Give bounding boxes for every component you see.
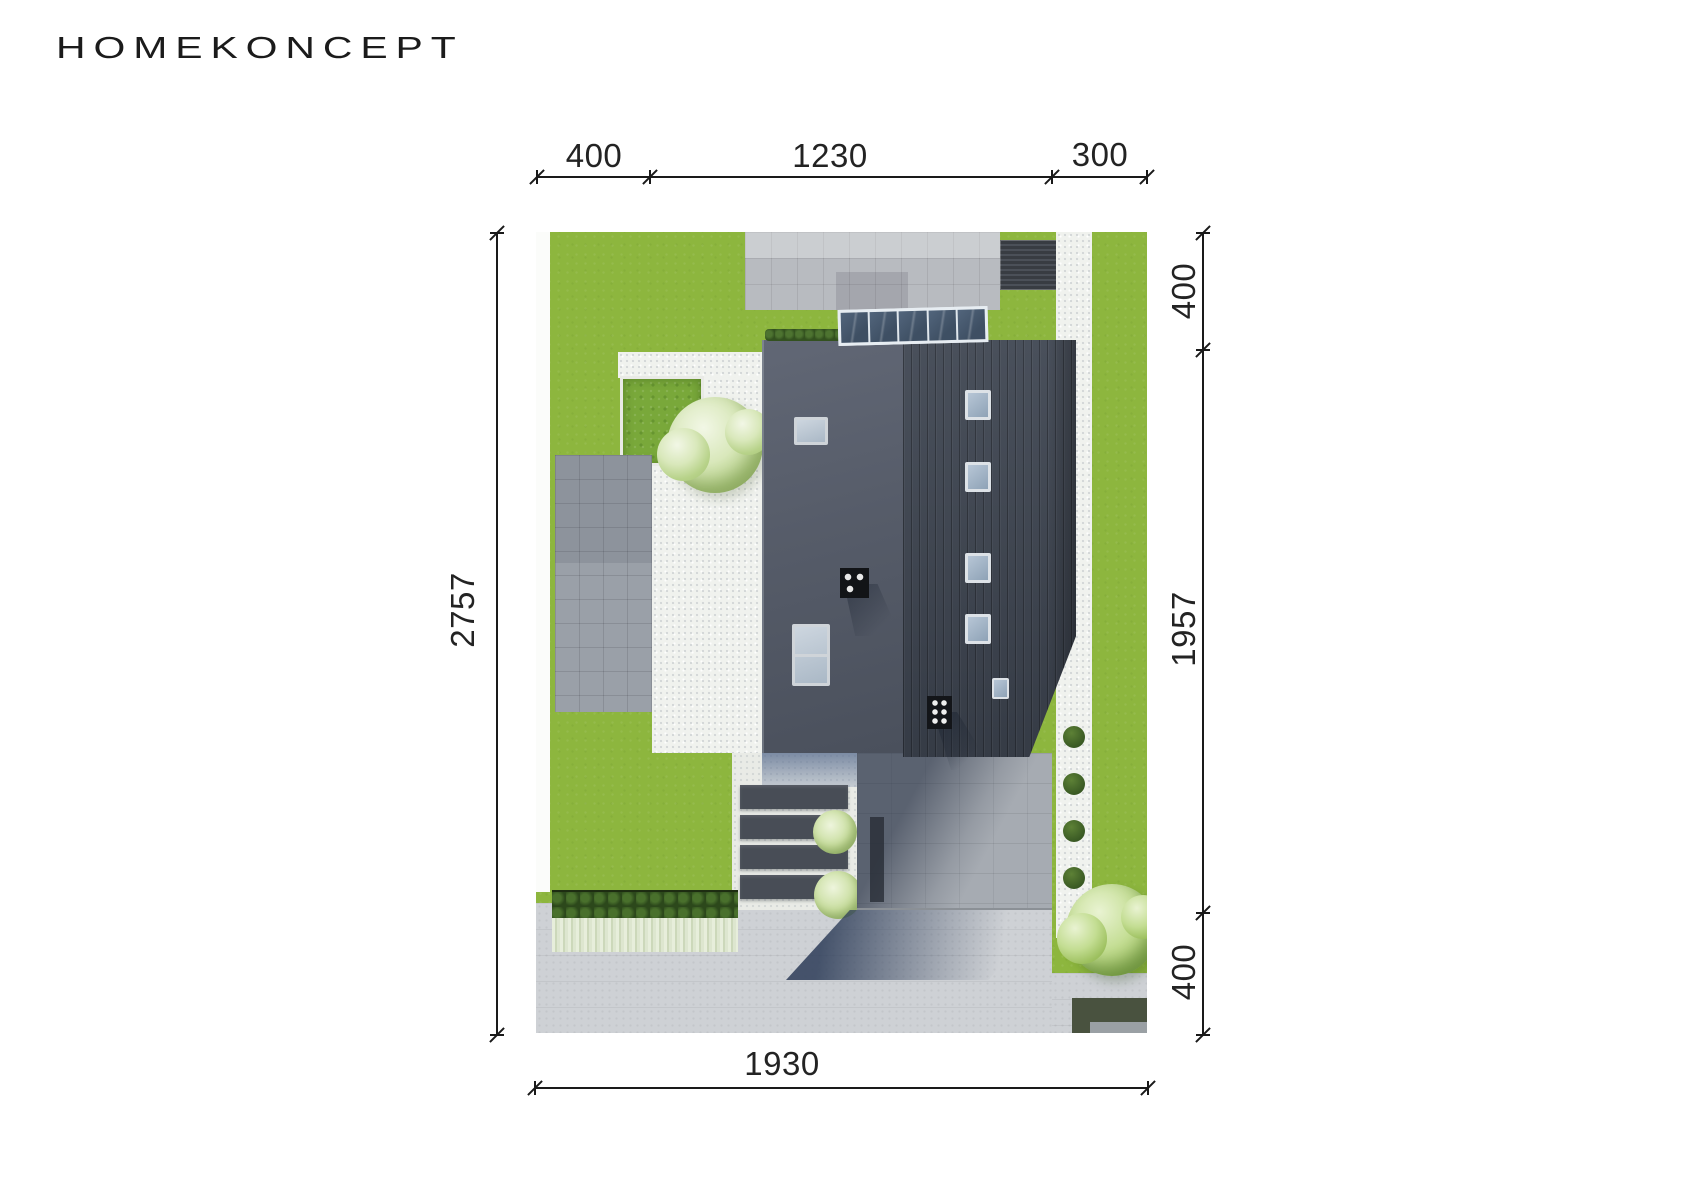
canopy-panel <box>870 311 898 342</box>
gravel-path <box>618 352 762 378</box>
bush <box>1063 820 1085 842</box>
skylight-east-small <box>992 678 1009 699</box>
dim-stub <box>536 170 538 184</box>
patio-tiles <box>555 455 652 712</box>
dim-stub <box>1196 349 1210 351</box>
brand-logo: HOMEKONCEPT <box>56 30 464 66</box>
skylight-east <box>965 553 991 583</box>
dim-label-bottom: 1930 <box>744 1045 819 1083</box>
site-plan-page: HOMEKONCEPT <box>0 0 1699 1200</box>
ornamental-grasses <box>552 918 738 952</box>
plot-render <box>536 232 1147 1033</box>
corner-gray-paving <box>1090 1022 1147 1033</box>
house-shadow-entry <box>762 753 857 787</box>
dim-stub <box>649 170 651 184</box>
entry-shrub <box>813 810 857 854</box>
north-paving <box>745 232 1000 310</box>
dimension-line <box>537 176 1148 178</box>
dim-stub <box>1196 1034 1210 1036</box>
dim-stub <box>1196 912 1210 914</box>
dimension-line <box>496 233 498 1035</box>
dim-stub <box>1146 170 1148 184</box>
dim-label-top-middle: 1230 <box>792 137 867 175</box>
chimney-vent <box>840 568 869 598</box>
canopy-panel <box>899 311 927 342</box>
dim-stub <box>1147 1081 1149 1095</box>
skylight-east <box>965 462 991 492</box>
bush <box>1063 867 1085 889</box>
main-roof-west <box>762 340 903 753</box>
dim-label-right-middle: 1957 <box>1165 591 1203 666</box>
bush <box>1063 726 1085 748</box>
dim-label-left: 2757 <box>444 572 482 647</box>
garden-tree <box>1066 884 1147 976</box>
terrace-tree <box>667 397 763 493</box>
dim-stub <box>534 1081 536 1095</box>
skylight-west <box>794 417 828 445</box>
dim-stub <box>1196 232 1210 234</box>
plot-left-margin <box>536 232 550 892</box>
dim-stub <box>490 1034 504 1036</box>
dim-label-top-right: 300 <box>1072 136 1129 174</box>
dim-stub <box>490 232 504 234</box>
garage-roof-slot <box>870 817 884 902</box>
skylight-east <box>965 390 991 420</box>
garage-roof <box>857 753 1052 910</box>
entry-step <box>740 785 848 809</box>
dim-stub <box>1051 170 1053 184</box>
bush <box>1063 773 1085 795</box>
skylight-west-double <box>792 624 830 686</box>
skylight-east <box>965 614 991 644</box>
canopy-panel <box>928 310 956 341</box>
dim-label-right-bottom: 400 <box>1165 944 1203 1001</box>
glass-canopy <box>838 306 989 346</box>
canopy-panel <box>841 312 869 343</box>
hedge-row <box>552 890 738 920</box>
dimension-line <box>535 1087 1148 1089</box>
dim-label-top-left: 400 <box>566 137 623 175</box>
dim-label-right-top: 400 <box>1165 263 1203 320</box>
canopy-panel <box>957 309 985 340</box>
roof-vent <box>927 696 952 729</box>
roof-edge-hedge <box>765 329 842 341</box>
north-paving-dark-tiles <box>836 272 908 310</box>
